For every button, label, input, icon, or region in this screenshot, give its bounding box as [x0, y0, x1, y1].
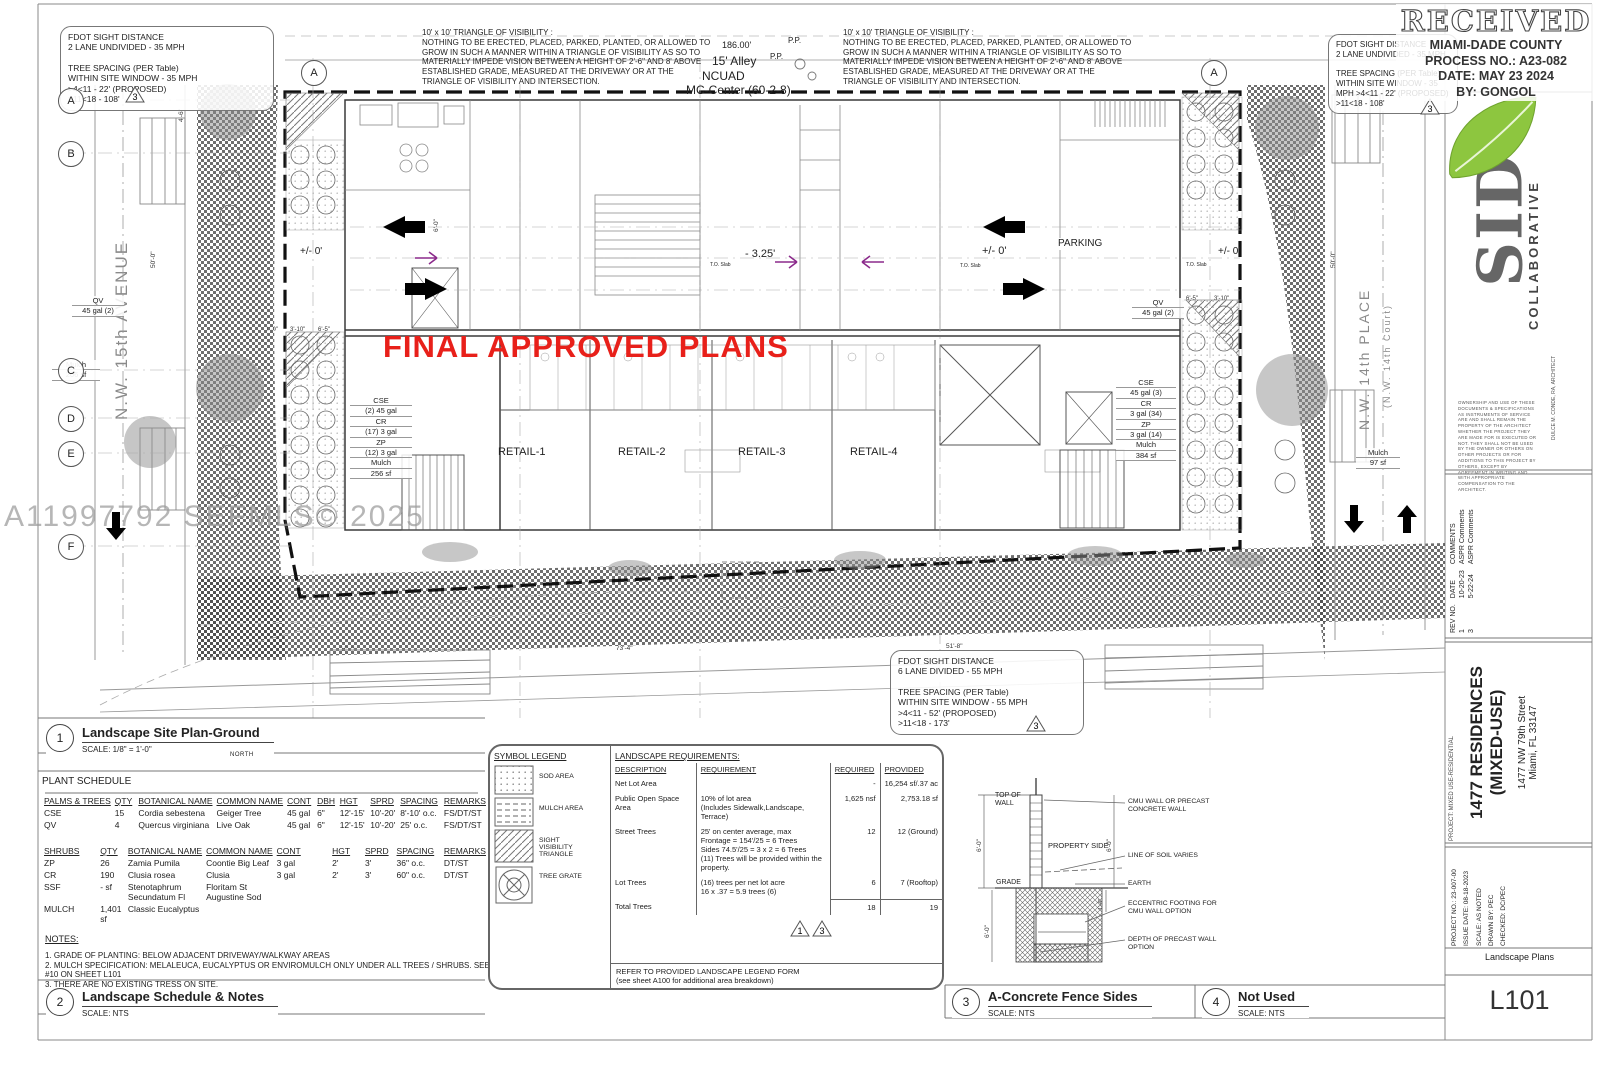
grid-bubble-e: E [58, 441, 84, 467]
legend-item-label: SOD AREA [539, 765, 591, 780]
planting-stack-left: CSE(2) 45 galCR(17) 3 galZP(12) 3 galMul… [350, 396, 412, 479]
text-line [898, 677, 1076, 687]
table-cell: 3 gal [275, 857, 308, 869]
text-line: 45 gal (3) [1116, 388, 1176, 398]
text-line: 2 LANE UNDIVIDED - 35 MPH [68, 42, 266, 52]
text-line: 3. THERE ARE NO EXISTING TRESS ON SITE. [45, 980, 485, 990]
requirements-title: LANDSCAPE REQUIREMENTS: [611, 746, 942, 763]
revision-triangle-marker: 3 [1026, 715, 1046, 733]
table-cell: REQUIRED [830, 763, 880, 776]
text-line: CR [1116, 399, 1176, 409]
text-line: 3 gal (34) [1116, 409, 1176, 419]
table-cell [308, 869, 330, 881]
fence-earth-label: EARTH [1128, 880, 1151, 888]
table-row: Total Trees1819 [611, 899, 942, 915]
text-line: CSE [1116, 378, 1176, 388]
fence-top-of-wall-label: TOP OF WALL [995, 792, 1021, 809]
text-line: FDOT SIGHT DISTANCE [68, 32, 266, 42]
retail-1-label: RETAIL-1 [498, 446, 545, 459]
table-row: MULCH1,401 sfClassic Eucalyptus [42, 903, 488, 925]
table-cell: 2,753.18 sf [880, 791, 942, 824]
text-line: (12) 3 gal [350, 448, 412, 458]
plant-schedule: PLANT SCHEDULE PALMS & TREESQTYBOTANICAL… [42, 776, 488, 925]
drawing-scale: SCALE: NTS [1238, 1007, 1309, 1018]
table-cell: COMMON NAME [215, 795, 286, 807]
table-cell [395, 903, 442, 925]
table-cell [363, 903, 395, 925]
text-line: TREE SPACING (PER Table) [898, 687, 1076, 697]
text-line: >4<11 - 22' (PROPOSED) [68, 84, 266, 94]
table-cell: SPRD [368, 795, 398, 807]
planting-stack-right: CSE45 gal (3)CR3 gal (34)ZP3 gal (14)Mul… [1116, 378, 1176, 461]
zoning-label-ncuad: NCUAD [702, 69, 745, 83]
grid-bubble-f: F [58, 534, 84, 560]
table-cell: Classic Eucalyptus [126, 903, 204, 925]
svg-text:3: 3 [819, 926, 824, 936]
table-cell: 10% of lot area (Includes Sidewalk,Lands… [696, 791, 830, 824]
table-cell: DBH [315, 795, 338, 807]
zoning-label-mc-center: MC-Center (60-2-8) [686, 83, 791, 97]
text-line: TRIANGLE OF VISIBILITY AND INTERSECTION. [843, 77, 1173, 87]
table-cell: 36" o.c. [395, 857, 442, 869]
table-cell: 10'-20' [368, 819, 398, 831]
symbol-legend-title: SYMBOL LEGEND [494, 751, 606, 761]
text-line: ESTABLISHED GRADE, MEASURED AT THE DRIVE… [843, 67, 1173, 77]
text-line: QV [72, 296, 124, 306]
table-cell: 45 gal [285, 819, 315, 831]
shrubs-table: SHRUBSQTYBOTANICAL NAMECOMMON NAMECONTHG… [42, 845, 488, 925]
legend-requirements-panel: SYMBOL LEGEND SOD AREA MULCH AREA SIGHT … [488, 744, 944, 990]
mls-watermark: A11997792 SEFMLS© 2025 [4, 500, 425, 534]
stairs-elevators [402, 268, 1124, 530]
table-cell: SHRUBS [42, 845, 98, 857]
text-line: NOTHING TO BE ERECTED, PLACED, PARKED, P… [843, 38, 1173, 48]
revision-triangle-marker: 3 [1420, 98, 1440, 116]
text-line: WITHIN SITE WINDOW - 35 MPH [68, 73, 266, 83]
text-line: >11<18 - 173' [898, 718, 1076, 728]
table-cell: 3 gal [275, 869, 308, 881]
table-row: QV4Quercus virginianaLive Oak45 gal6"12'… [42, 819, 488, 831]
table-cell: Clusia rosea [126, 869, 204, 881]
table-cell: REMARKS [442, 795, 488, 807]
svg-text:3: 3 [1427, 104, 1432, 114]
text-line: GROW IN SUCH A MANNER WITHIN A TRIANGLE … [422, 48, 752, 58]
table-cell: HGT [338, 795, 369, 807]
building-interior [345, 100, 1180, 330]
table-header-row: PALMS & TREESQTYBOTANICAL NAMECOMMON NAM… [42, 795, 488, 807]
table-cell: 12 [830, 824, 880, 875]
alley-label: 15' Alley [712, 54, 756, 68]
table-cell: FS/DT/ST [442, 807, 488, 819]
table-cell: Lot Trees [611, 875, 696, 899]
grid-bubble-top-right: A [1201, 60, 1227, 86]
retail-4-label: RETAIL-4 [850, 446, 897, 459]
table-cell: 60" o.c. [395, 869, 442, 881]
drawing-title-2: 2 Landscape Schedule & Notes SCALE: NTS [46, 988, 278, 1018]
text-line: 2. MULCH SPECIFICATION: MELALEUCA, EUCAL… [45, 961, 485, 971]
titleblock-lines [1445, 92, 1592, 975]
svg-text:3: 3 [1033, 721, 1038, 731]
text-line: (see sheet A100 for additional area brea… [616, 976, 937, 985]
table-cell: 6 [830, 875, 880, 899]
fence-property-side-label: PROPERTY SIDE [1048, 842, 1109, 851]
legend-item-label: SIGHT VISIBILITY TRIANGLE [539, 829, 591, 858]
table-cell [308, 857, 330, 869]
mulch-area-swatch-icon [494, 797, 534, 827]
table-cell: (16) trees per net lot acre 16 x .37 = 5… [696, 875, 830, 899]
table-cell: REMARKS [442, 845, 488, 857]
table-cell: ZP [42, 857, 98, 869]
table-cell [442, 881, 488, 903]
table-cell: 25' on center average, max Frontage = 15… [696, 824, 830, 875]
table-cell: SPACING [395, 845, 442, 857]
table-cell: CONT [285, 795, 315, 807]
drawing-number-bubble: 4 [1202, 988, 1230, 1016]
revision-triangle-marker: 3 [125, 86, 145, 104]
legend-item-sight-triangle: SIGHT VISIBILITY TRIANGLE [494, 829, 606, 863]
table-cell [395, 881, 442, 903]
table-cell: 2' [330, 869, 363, 881]
visibility-note-title: 10' x 10' TRIANGLE OF VISIBILITY : [422, 28, 752, 38]
legend-item-mulch: MULCH AREA [494, 797, 606, 827]
fence-cmu-label: CMU WALL OR PRECAST CONCRETE WALL [1128, 798, 1209, 814]
legend-item-label: MULCH AREA [539, 797, 591, 812]
table-cell: BOTANICAL NAME [126, 845, 204, 857]
text-line: #10 ON SHEET L101 [45, 970, 485, 980]
table-cell: 12'-15' [338, 807, 369, 819]
table-cell [330, 881, 363, 903]
table-body: ZP26Zamia PumilaCoontie Big Leaf3 gal2'3… [42, 857, 488, 925]
power-pole-icon [795, 59, 816, 80]
table-cell: 12'-15' [338, 819, 369, 831]
table-cell: DESCRIPTION [611, 763, 696, 776]
table-cell: PALMS & TREES [42, 795, 113, 807]
table-cell: Quercus virginiana [136, 819, 214, 831]
drawing-title-text: Not Used [1238, 988, 1309, 1007]
table-cell: 6" [315, 819, 338, 831]
drawing-scale: SCALE: NTS [82, 1007, 278, 1018]
table-row: Street Trees25' on center average, max F… [611, 824, 942, 875]
text-line: QV [1132, 298, 1184, 308]
table-body: CSE15Cordia sebestenaGeiger Tree45 gal6"… [42, 807, 488, 831]
alley-dimension: 186.00' [722, 40, 751, 51]
table-row: SSF- sfStenotaphrum Secundatum FlFlorita… [42, 881, 488, 903]
table-cell [696, 899, 830, 915]
drawing-title-text: A-Concrete Fence Sides [988, 988, 1152, 1007]
table-cell: 7 (Rooftop) [880, 875, 942, 899]
fdot-note-south: FDOT SIGHT DISTANCE6 LANE DIVIDED - 55 M… [890, 650, 1084, 735]
tree-grate-swatch-icon [494, 865, 534, 905]
drawing-number-bubble: 1 [46, 724, 74, 752]
table-cell: DT/ST [442, 869, 488, 881]
table-cell: Net Lot Area [611, 776, 696, 791]
text-line: >11<18 - 108' [68, 94, 266, 104]
text-line: MATERIALLY IMPEDE VISION BETWEEN A HEIGH… [843, 57, 1173, 67]
text-line: ZP [350, 438, 412, 448]
table-cell: Street Trees [611, 824, 696, 875]
drawing-title-text: Landscape Site Plan-Ground [82, 724, 274, 743]
table-cell [442, 903, 488, 925]
text-line: MATERIALLY IMPEDE VISION BETWEEN A HEIGH… [422, 57, 752, 67]
text-line: 6 LANE DIVIDED - 55 MPH [898, 666, 1076, 676]
table-row: Lot Trees(16) trees per net lot acre 16 … [611, 875, 942, 899]
table-row: Public Open Space Area10% of lot area (I… [611, 791, 942, 824]
visibility-note-title: 10' x 10' TRIANGLE OF VISIBILITY : [843, 28, 1173, 38]
table-cell [308, 845, 330, 857]
power-pole-label: P.P. [770, 52, 783, 61]
fence-soil-label: LINE OF SOIL VARIES [1128, 852, 1198, 860]
stamp-process-no: PROCESS NO.: A23-082 [1396, 54, 1596, 70]
table-cell: 1,625 nsf [830, 791, 880, 824]
table-cell: BOTANICAL NAME [136, 795, 214, 807]
to-slab-label: T.O. Slab [1186, 263, 1207, 269]
drawing-title-text: Landscape Schedule & Notes [82, 988, 278, 1007]
svg-text:3: 3 [132, 92, 137, 102]
table-cell [275, 881, 308, 903]
retail-partitions [500, 340, 1100, 530]
sight-triangle-swatch-icon [494, 829, 534, 863]
drawing-sheet: A11997792 SEFMLS© 2025 FINAL APPROVED PL… [0, 0, 1600, 1066]
table-cell [204, 903, 275, 925]
table-cell: QTY [98, 845, 126, 857]
table-cell: 3' [363, 857, 395, 869]
drawing-title-4: 4 Not Used SCALE: NTS [1202, 988, 1309, 1018]
requirements-footer: REFER TO PROVIDED LANDSCAPE LEGEND FORM(… [611, 963, 942, 988]
drawing-number-bubble: 2 [46, 988, 74, 1016]
qv-callout-left: QV45 gal (2) [72, 296, 124, 317]
received-stamp: RECEIVED MIAMI-DADE COUNTY PROCESS NO.: … [1396, 4, 1596, 101]
table-cell: Stenotaphrum Secundatum Fl [126, 881, 204, 903]
table-cell: Floritam St Augustine Sod [204, 881, 275, 903]
retail-3-label: RETAIL-3 [738, 446, 785, 459]
table-row: CSE15Cordia sebestenaGeiger Tree45 gal6"… [42, 807, 488, 819]
table-cell: Geiger Tree [215, 807, 286, 819]
text-line: 45 gal (2) [1132, 308, 1184, 318]
legend-item-tree-grate: TREE GRATE [494, 865, 606, 905]
text-line: 3 gal (14) [1116, 430, 1176, 440]
final-approved-stamp: FINAL APPROVED PLANS [383, 329, 789, 365]
table-cell: 19 [880, 899, 942, 915]
table-cell: 10'-20' [368, 807, 398, 819]
stamp-date: DATE: MAY 23 2024 [1396, 69, 1596, 85]
fence-depth-label: DEPTH OF PRECAST WALL OPTION [1128, 936, 1216, 952]
table-cell: 25' o.c. [398, 819, 442, 831]
text-line: REFER TO PROVIDED LANDSCAPE LEGEND FORM [616, 967, 937, 976]
table-cell: REQUIREMENT [696, 763, 830, 776]
visibility-note-right: 10' x 10' TRIANGLE OF VISIBILITY : NOTHI… [843, 28, 1173, 87]
notes-title: NOTES: [45, 934, 485, 945]
drawing-title-3: 3 A-Concrete Fence Sides SCALE: NTS [952, 988, 1152, 1018]
table-cell: 18 [830, 899, 880, 915]
parking-label: PARKING [1058, 238, 1102, 250]
table-cell: - [830, 776, 880, 791]
table-header-row: SHRUBSQTYBOTANICAL NAMECOMMON NAMECONTHG… [42, 845, 488, 857]
table-cell: 1,401 sf [98, 903, 126, 925]
table-cell [696, 776, 830, 791]
table-cell: CSE [42, 807, 113, 819]
table-cell: Zamia Pumila [126, 857, 204, 869]
table-row: ZP26Zamia PumilaCoontie Big Leaf3 gal2'3… [42, 857, 488, 869]
table-cell: CR [42, 869, 98, 881]
sod-area-swatch-icon [494, 765, 534, 795]
elevation-right: +/- 0' [1218, 246, 1240, 258]
text-line: Mulch [1356, 448, 1400, 458]
text-line: ZP [1116, 420, 1176, 430]
text-line [68, 53, 266, 63]
text-line: TREE SPACING (PER Table) [68, 63, 266, 73]
table-cell: 15 [113, 807, 137, 819]
visibility-note-lines: NOTHING TO BE ERECTED, PLACED, PARKED, P… [843, 38, 1173, 87]
fdot-note-nw: FDOT SIGHT DISTANCE2 LANE UNDIVIDED - 35… [60, 26, 274, 111]
grid-bubble-top-left: A [301, 60, 327, 86]
table-cell: 26 [98, 857, 126, 869]
drawing-number-bubble: 3 [952, 988, 980, 1016]
text-line: CSE [350, 396, 412, 406]
planters [286, 97, 1242, 530]
table-cell: Total Trees [611, 899, 696, 915]
table-cell: MULCH [42, 903, 98, 925]
text-line: (2) 45 gal [350, 406, 412, 416]
notes-lines: 1. GRADE OF PLANTING: BELOW ADJACENT DRI… [45, 951, 485, 990]
table-cell: HGT [330, 845, 363, 857]
landscape-requirements: LANDSCAPE REQUIREMENTS: DESCRIPTIONREQUI… [611, 746, 942, 988]
stamp-agency: MIAMI-DADE COUNTY [1396, 38, 1596, 54]
grid-bubble-c: C [58, 358, 84, 384]
table-cell: DT/ST [442, 857, 488, 869]
landscape-notes: NOTES: 1. GRADE OF PLANTING: BELOW ADJAC… [45, 934, 485, 990]
table-cell: Public Open Space Area [611, 791, 696, 824]
text-line: GROW IN SUCH A MANNER WITHIN A TRIANGLE … [843, 48, 1173, 58]
text-line: CR [350, 417, 412, 427]
elevation-mid-neg: - 3.25' [745, 248, 775, 261]
text-line: 384 sf [1116, 451, 1176, 461]
drawing-title-1: 1 Landscape Site Plan-Ground SCALE: 1/8"… [46, 724, 274, 754]
text-line: Mulch [350, 458, 412, 468]
legend-item-sod: SOD AREA [494, 765, 606, 795]
text-line: FDOT SIGHT DISTANCE [898, 656, 1076, 666]
grid-bubble-d: D [58, 406, 84, 432]
table-cell: 190 [98, 869, 126, 881]
table-cell [330, 903, 363, 925]
table-cell: 4 [113, 819, 137, 831]
revision-triangle-marker: 1 [790, 920, 810, 938]
north-label: NORTH [230, 752, 254, 758]
text-line: 256 sf [350, 469, 412, 479]
table-cell: Cordia sebestena [136, 807, 214, 819]
qv-callout-right: QV45 gal (2) [1132, 298, 1184, 319]
text-line: (17) 3 gal [350, 427, 412, 437]
received-stamp-title: RECEIVED [1396, 4, 1596, 38]
table-cell [363, 881, 395, 903]
table-cell: 2' [330, 857, 363, 869]
fence-eccentric-label: ECCENTRIC FOOTING FOR CMU WALL OPTION [1128, 900, 1217, 916]
svg-text:1: 1 [797, 926, 802, 936]
text-line: 45 gal (2) [72, 306, 124, 316]
text-line: WITHIN SITE WINDOW - 55 MPH [898, 697, 1076, 707]
table-body: Net Lot Area-16,254 sf/.37 acPublic Open… [611, 776, 942, 915]
text-line: Mulch [1116, 440, 1176, 450]
table-cell: 45 gal [285, 807, 315, 819]
to-slab-label: T.O. Slab [960, 264, 981, 270]
text-line: 97 sf [1356, 458, 1400, 468]
to-slab-label: T.O. Slab [710, 263, 731, 269]
grid-bubble-a: A [58, 88, 84, 114]
table-cell: 12 (Ground) [880, 824, 942, 875]
text-line: >4<11 - 52' (PROPOSED) [898, 708, 1076, 718]
table-cell [308, 881, 330, 903]
table-cell: 6" [315, 807, 338, 819]
table-cell: Clusia [204, 869, 275, 881]
table-cell: Live Oak [215, 819, 286, 831]
fence-grade-label: GRADE [996, 879, 1021, 887]
elevation-mid-pos: +/- 0' [982, 245, 1006, 258]
text-line: NOTHING TO BE ERECTED, PLACED, PARKED, P… [422, 38, 752, 48]
slope-arrows [415, 252, 884, 268]
symbol-legend: SYMBOL LEGEND SOD AREA MULCH AREA SIGHT … [490, 746, 611, 988]
table-cell [308, 903, 330, 925]
grid-bubble-b: B [58, 141, 84, 167]
table-cell: CONT [275, 845, 308, 857]
table-cell: SPRD [363, 845, 395, 857]
palms-trees-table: PALMS & TREESQTYBOTANICAL NAMECOMMON NAM… [42, 795, 488, 831]
table-cell: COMMON NAME [204, 845, 275, 857]
table-cell: SPACING [398, 795, 442, 807]
requirements-table: DESCRIPTIONREQUIREMENTREQUIREDPROVIDED N… [611, 763, 942, 915]
table-cell [275, 903, 308, 925]
table-cell: QTY [113, 795, 137, 807]
retail-2-label: RETAIL-2 [618, 446, 665, 459]
table-cell: - sf [98, 881, 126, 903]
table-row: CR190Clusia roseaClusia3 gal2'3'60" o.c.… [42, 869, 488, 881]
table-cell: Coontie Big Leaf [204, 857, 275, 869]
elevation-left: +/- 0' [300, 246, 322, 258]
power-pole-label: P.P. [788, 36, 801, 45]
plant-schedule-title: PLANT SCHEDULE [42, 776, 488, 787]
revision-triangle-marker: 3 [812, 920, 832, 938]
text-line: 1. GRADE OF PLANTING: BELOW ADJACENT DRI… [45, 951, 485, 961]
table-cell: 16,254 sf/.37 ac [880, 776, 942, 791]
table-cell: SSF [42, 881, 98, 903]
stamp-by: BY: GONGOL [1396, 85, 1596, 101]
table-cell: 8'-10' o.c. [398, 807, 442, 819]
table-row: Net Lot Area-16,254 sf/.37 ac [611, 776, 942, 791]
table-cell: 3' [363, 869, 395, 881]
table-cell: QV [42, 819, 113, 831]
mulch-callout-right: Mulch97 sf [1356, 448, 1400, 469]
table-cell: FS/DT/ST [442, 819, 488, 831]
legend-item-label: TREE GRATE [539, 865, 591, 880]
drawing-scale: SCALE: NTS [988, 1007, 1152, 1018]
table-header-row: DESCRIPTIONREQUIREMENTREQUIREDPROVIDED [611, 763, 942, 776]
table-cell: PROVIDED [880, 763, 942, 776]
